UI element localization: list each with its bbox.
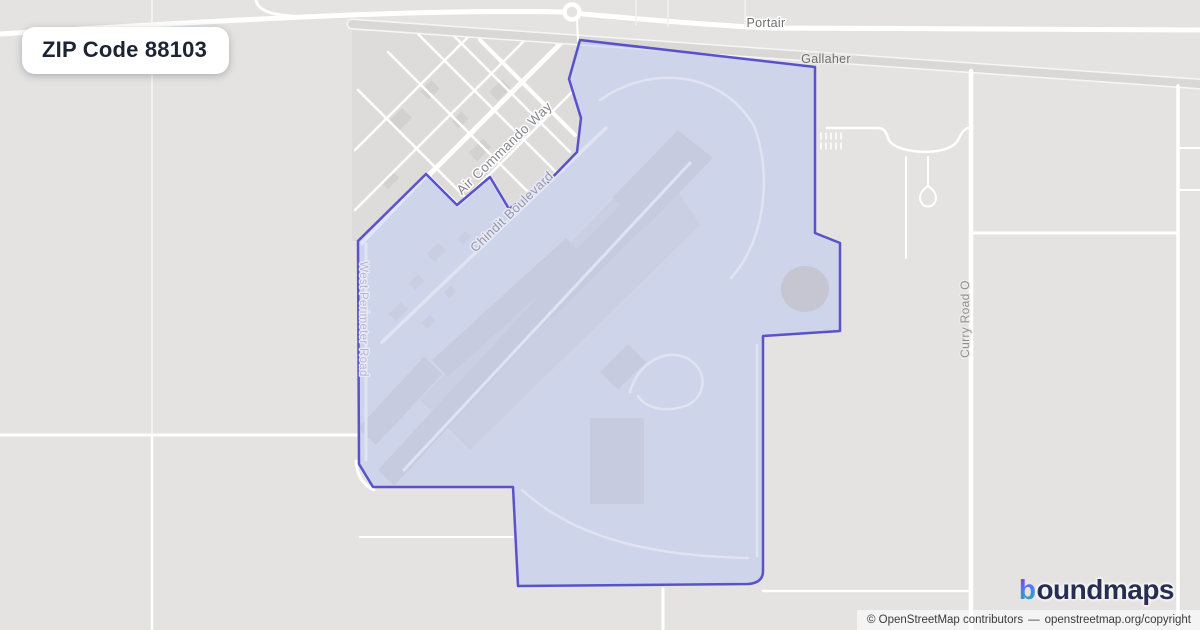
road-label-gallaher: Gallaher bbox=[801, 52, 851, 66]
road-label-west-perimeter-road: West Perimeter Road bbox=[357, 261, 369, 376]
boundmaps-logo-mark: b bbox=[1019, 574, 1037, 605]
attribution-bar: © OpenStreetMap contributors — openstree… bbox=[857, 610, 1200, 630]
attribution-dash: — bbox=[1028, 614, 1040, 626]
zip-code-badge: ZIP Code 88103 bbox=[22, 27, 229, 74]
boundmaps-logo-text: oundmaps bbox=[1036, 574, 1174, 605]
pond bbox=[781, 266, 829, 312]
attribution-link[interactable]: openstreetmap.org/copyright bbox=[1045, 614, 1191, 626]
road-label-portair: Portair bbox=[747, 16, 786, 30]
map-canvas[interactable]: Portair Gallaher Air Commando Way Chindi… bbox=[0, 0, 1200, 630]
map-stage: Portair Gallaher Air Commando Way Chindi… bbox=[0, 0, 1200, 630]
zip-code-title: ZIP Code 88103 bbox=[42, 37, 207, 62]
attribution-text: © OpenStreetMap contributors bbox=[867, 614, 1023, 626]
road-label-curry-road-o: Curry Road O bbox=[958, 280, 972, 358]
boundmaps-logo: boundmaps bbox=[1019, 574, 1174, 606]
